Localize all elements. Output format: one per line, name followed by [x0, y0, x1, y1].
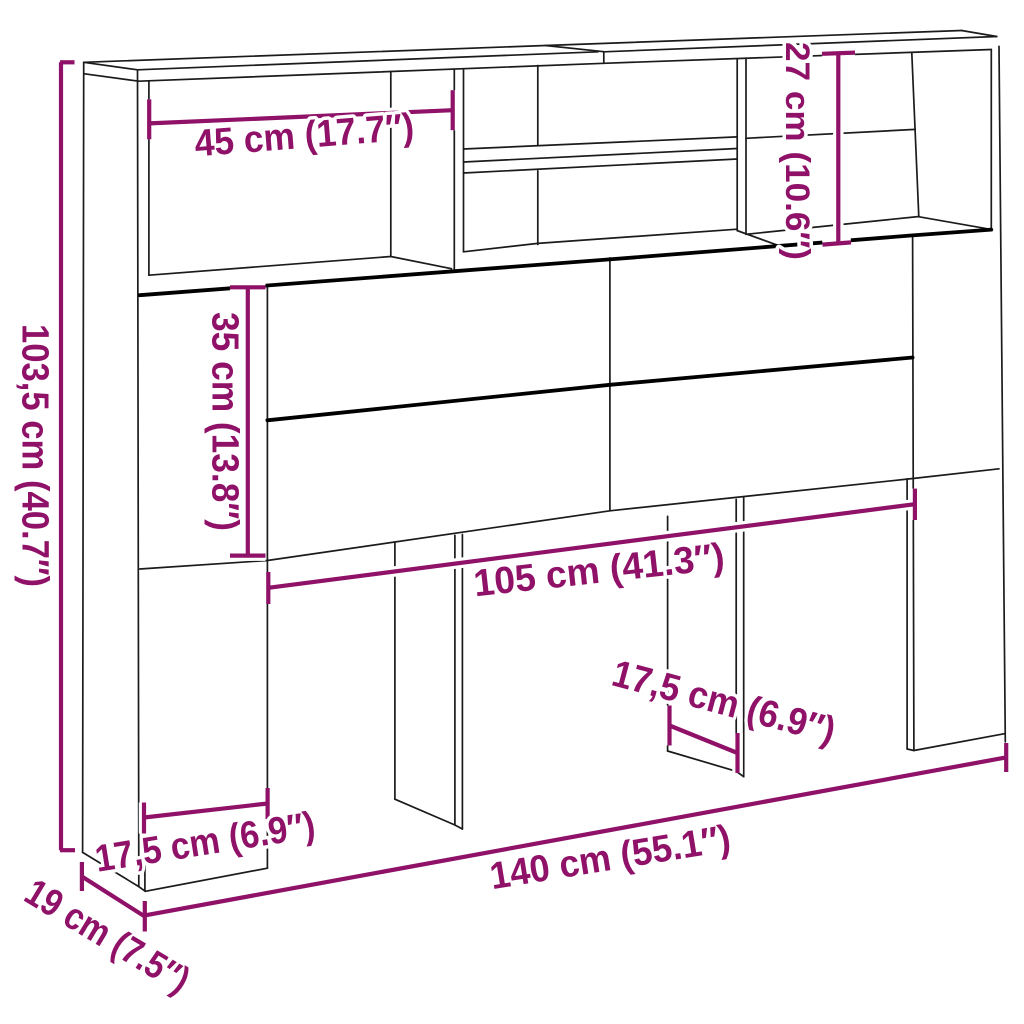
svg-text:35 cm (13.8″): 35 cm (13.8″) — [203, 312, 245, 531]
svg-text:27 cm (10.6″): 27 cm (10.6″) — [778, 42, 816, 260]
svg-text:103,5 cm (40.7″): 103,5 cm (40.7″) — [14, 324, 56, 587]
